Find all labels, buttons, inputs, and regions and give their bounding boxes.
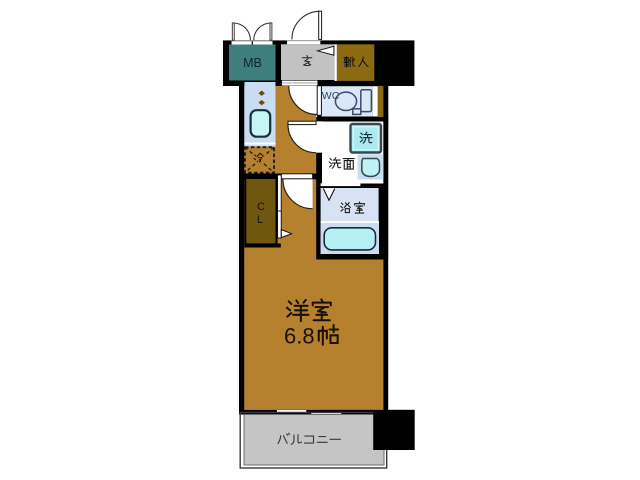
svg-text:6.8: 6.8: [284, 324, 315, 349]
svg-text:WC: WC: [322, 90, 340, 102]
svg-text:MB: MB: [243, 56, 262, 70]
svg-text:C: C: [257, 201, 265, 213]
svg-text:L: L: [257, 214, 263, 226]
